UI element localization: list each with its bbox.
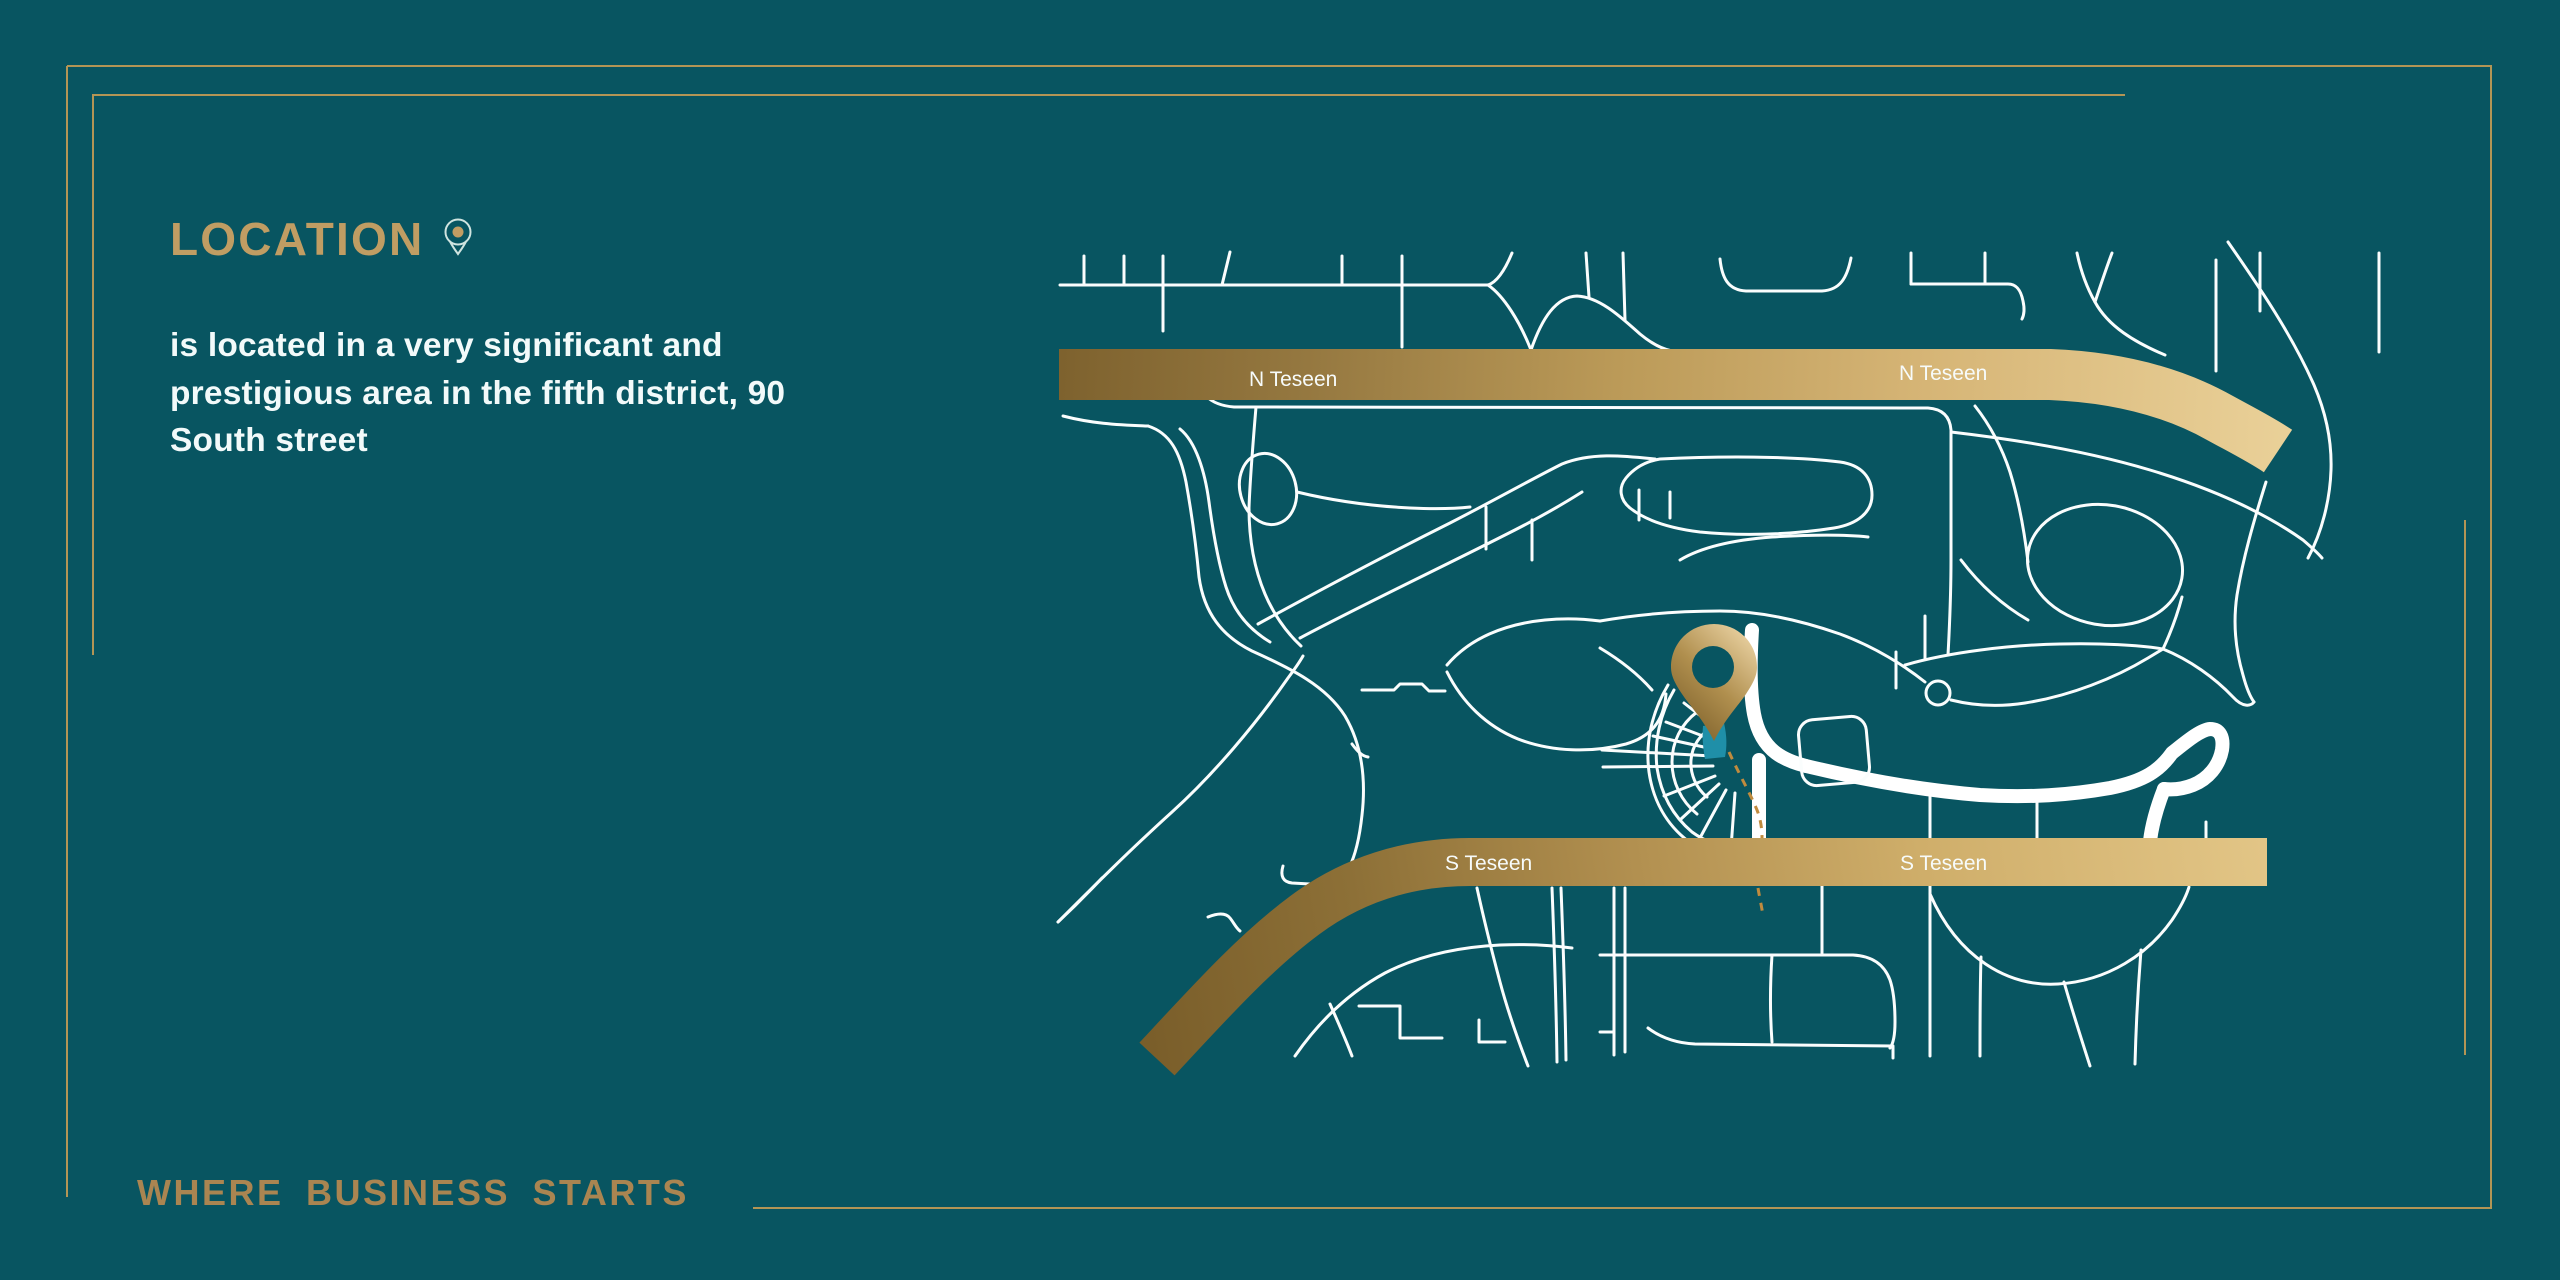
svg-text:S Teseen: S Teseen: [1900, 852, 1987, 875]
svg-text:N Teseen: N Teseen: [1899, 362, 1987, 385]
svg-text:N Teseen: N Teseen: [1249, 368, 1337, 391]
svg-text:S Teseen: S Teseen: [1445, 852, 1532, 875]
